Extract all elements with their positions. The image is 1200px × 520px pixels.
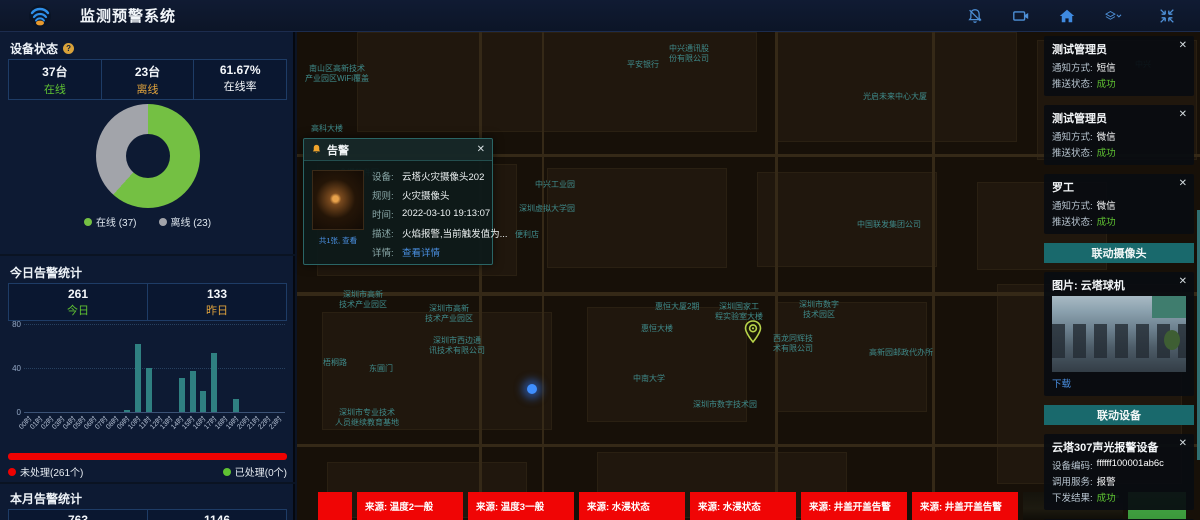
stat-cell: 133昨日 [147,284,286,320]
red-dot-icon [8,468,16,476]
legend-label: 在线 (37) [96,214,137,229]
alert-source-box[interactable]: 来源: 井盖开盖告警 [801,492,907,520]
bar-slot [24,324,35,412]
map-label: 深圳虚拟大学园 [519,204,575,214]
card-row: 通知方式:短信 [1052,60,1186,74]
month-alerts-title: 本月告警统计 [10,490,82,507]
top-header: 监测预警系统 [0,0,1200,32]
today-alerts-stats: 261今日133昨日 [8,283,287,321]
header-toolbar [966,7,1178,25]
bar-slot [46,324,57,412]
stat-label: 离线 [102,81,194,97]
stat-cell: 37台在线 [9,60,101,99]
card-row-value: 成功 [1097,490,1116,504]
map-label: 中兴通讯股 份有限公司 [669,44,709,64]
card-row-value: 微信 [1097,129,1116,143]
close-icon[interactable]: ✕ [1179,110,1187,120]
linked-devices-header[interactable]: 联动设备 [1044,405,1194,425]
map-label: 深圳市专业技术 人员继续教育基地 [335,408,399,428]
bar-slot [198,324,209,412]
map-label: 梧桐路 [323,358,347,368]
bar-slot [78,324,89,412]
alert-source-box[interactable]: 来源: 温度3一般 [468,492,574,520]
divider [0,254,295,256]
today-alerts-title: 今日告警统计 [10,264,82,281]
bar-slot [231,324,242,412]
notification-card: 测试管理员✕通知方式:微信推送状态:成功 [1044,105,1194,165]
notification-card: 云塔307声光报警设备✕设备编码:ffffff100001ab6c调用服务:报警… [1044,434,1194,510]
card-row-value: 成功 [1097,76,1116,90]
stat-label: 在线率 [194,78,286,94]
bar-slot [176,324,187,412]
card-row: 下发结果:成功 [1052,490,1186,504]
map-label: 中国联发集团公司 [857,220,921,230]
card-title: 罗工 [1052,179,1186,195]
notification-card: 罗工✕通知方式:微信推送状态:成功 [1044,174,1194,234]
popup-field-label: 规则: [372,188,398,202]
card-row-value: ffffff100001ab6c [1097,458,1164,472]
popup-field-label: 详情: [372,245,398,259]
fire-snapshot-image[interactable] [312,170,364,230]
bar-slot [133,324,144,412]
notification-off-icon[interactable] [966,7,986,25]
card-row-label: 通知方式: [1052,129,1093,143]
camera-snapshot-image[interactable] [1052,296,1186,372]
card-row: 推送状态:成功 [1052,145,1186,159]
legend-item: 在线 (37) [84,214,137,229]
bar [190,371,196,412]
bar [135,344,141,412]
card-row-label: 推送状态: [1052,76,1093,90]
camera-image-title: 图片: 云塔球机 [1052,277,1186,293]
card-row-label: 推送状态: [1052,145,1093,159]
stat-value: 37台 [9,63,101,80]
close-icon[interactable]: ✕ [1179,439,1187,449]
card-row: 推送状态:成功 [1052,76,1186,90]
alert-popup-titlebar: 告警 ✕ [304,139,492,161]
card-row-label: 通知方式: [1052,60,1093,74]
map-building [777,32,1017,142]
map-label: 深圳市高新 技术产业园区 [339,290,387,310]
popup-field-row: 详情:查看详情 [372,242,488,261]
alert-source-box[interactable]: 来源: 井盖开盖告警 [912,492,1018,520]
popup-field-value: 火灾摄像头 [402,188,450,202]
alert-source-box[interactable]: 来源: 水浸状态 [690,492,796,520]
camera-image-card: 图片: 云塔球机 ✕ 下载 [1044,272,1194,396]
notification-card: 测试管理员✕通知方式:短信推送状态:成功 [1044,36,1194,96]
stat-cell: 261今日 [9,284,147,320]
alert-source-box[interactable]: 来源: 温度2一般 [357,492,463,520]
donut-legend: 在线 (37)离线 (23) [0,214,295,229]
stat-value: 1146 [148,513,286,520]
card-row: 调用服务:报警 [1052,474,1186,488]
map-label: 高科大楼 [311,124,343,134]
stat-cell: 763 [9,510,147,520]
app-logo-icon [28,4,52,28]
x-tick: 23时 [274,415,285,445]
green-dot-icon [223,468,231,476]
right-panel: 测试管理员✕通知方式:短信推送状态:成功测试管理员✕通知方式:微信推送状态:成功… [1044,36,1194,520]
bell-icon [311,144,322,155]
page-title: 监测预警系统 [80,5,176,26]
alert-popup-body: 共1张, 查看 设备:云塔火灾摄像头202规则:火灾摄像头时间:2022-03-… [304,161,492,175]
bar-slot [100,324,111,412]
popup-field-row: 规则:火灾摄像头 [372,185,488,204]
video-camera-icon[interactable] [1012,7,1032,25]
close-icon[interactable]: ✕ [477,145,485,155]
close-icon[interactable]: ✕ [1179,179,1187,189]
popup-field-row: 描述:火焰报警,当前触发值为... [372,223,488,242]
bar [211,353,217,412]
card-row-label: 调用服务: [1052,474,1093,488]
map-label: 深圳市数字 技术园区 [799,300,839,320]
alert-source-box[interactable] [318,492,352,520]
stat-label: 今日 [9,302,147,318]
bar-slot [68,324,79,412]
stat-label: 昨日 [148,302,286,318]
download-link[interactable]: 下载 [1052,376,1186,390]
divider [0,482,295,484]
card-row: 推送状态:成功 [1052,214,1186,228]
map-label: 平安银行 [627,60,659,70]
bar-slot [122,324,133,412]
bar-slot [220,324,231,412]
fullscreen-exit-icon[interactable] [1158,7,1178,25]
alert-source-box[interactable]: 来源: 水浸状态 [579,492,685,520]
snapshot-view-link[interactable]: 共1张, 查看 [312,235,364,246]
stat-value: 763 [9,513,147,520]
stat-value: 261 [9,287,147,301]
map-label: 中兴工业园 [535,180,575,190]
map-label: 深圳国家工 程实验室大楼 [715,302,763,322]
card-row: 设备编码:ffffff100001ab6c [1052,458,1186,472]
help-icon[interactable]: ? [63,43,74,54]
map-label: 深圳市数字技术园 [693,400,757,410]
map-label: 深圳市西边通 讯技术有限公司 [429,336,485,356]
month-alerts-stats: 7631146 [8,509,287,520]
map-label: 西龙同辉技 术有限公司 [773,334,813,354]
bar-slot [57,324,68,412]
map-label: 中南大学 [633,374,665,384]
popup-field-label: 时间: [372,207,398,221]
bar-slot [165,324,176,412]
bar-slot [209,324,220,412]
linked-camera-header[interactable]: 联动摄像头 [1044,243,1194,263]
card-title: 云塔307声光报警设备 [1052,439,1186,455]
dashboard: 监测预警系统 [0,0,1200,520]
stat-cell: 1146 [147,510,286,520]
popup-field-label: 设备: [372,169,398,183]
legend-dot-icon [84,218,92,226]
legend-item: 离线 (23) [159,214,212,229]
device-status-stats: 37台在线23台离线61.67%在线率 [8,59,287,100]
stat-cell: 23台离线 [101,60,194,99]
bar-slot [274,324,285,412]
layers-icon[interactable] [1104,7,1132,25]
bar [200,391,206,412]
map-label: 惠恒大楼 [641,324,673,334]
popup-field-value: 云塔火灾摄像头202 [402,169,484,183]
bar-slot [242,324,253,412]
stat-label: 在线 [9,81,101,97]
popup-field-label: 描述: [372,226,398,240]
card-row-value: 成功 [1097,145,1116,159]
legend-label: 离线 (23) [171,214,212,229]
map-label: 东圃门 [369,364,393,374]
bar-slot [187,324,198,412]
card-row-label: 下发结果: [1052,490,1093,504]
stat-value: 61.67% [194,63,286,77]
unhandled-progress-bar [8,453,287,460]
map-label: 光启未来中心大厦 [863,92,927,102]
bar-slot [263,324,274,412]
alert-popup-title: 告警 [327,142,472,158]
card-row: 通知方式:微信 [1052,129,1186,143]
bar [233,399,239,412]
map-road [775,32,778,520]
stat-value: 133 [148,287,286,301]
map-road [479,32,482,520]
bar-slot [111,324,122,412]
card-row-value: 微信 [1097,198,1116,212]
card-title: 测试管理员 [1052,110,1186,126]
chevron-down-icon [1117,14,1121,16]
device-status-title: 设备状态 ? [10,40,74,57]
card-title: 测试管理员 [1052,41,1186,57]
map-label: 高新园邮政代办所 [869,348,933,358]
stat-cell: 61.67%在线率 [193,60,286,99]
bar-slot [89,324,100,412]
handled-legend-item: 已处理(0个) [223,464,287,479]
map-label: 南山区高新技术 产业园区WiFi覆盖 [305,64,369,84]
close-icon[interactable]: ✕ [1179,277,1187,287]
map-road [542,32,544,520]
bar [124,410,130,412]
bar [179,378,185,412]
popup-field-row: 设备:云塔火灾摄像头202 [372,166,488,185]
view-details-link[interactable]: 查看详情 [402,245,440,259]
card-row-label: 通知方式: [1052,198,1093,212]
hourly-alerts-bar-chart: 80 40 0 00时01时02时03时04时05时06时07时08时09时10… [8,320,287,446]
popup-field-value: 2022-03-10 19:13:07 [402,208,490,219]
location-dot[interactable] [527,384,537,394]
legend-dot-icon [159,218,167,226]
map-pin-icon[interactable] [743,320,763,344]
card-row-value: 成功 [1097,214,1116,228]
bar-slot [144,324,155,412]
card-row-value: 报警 [1097,474,1116,488]
map-label: 便利店 [515,230,539,240]
unhandled-legend-item: 未处理(261个) [8,464,83,479]
card-row-label: 推送状态: [1052,214,1093,228]
left-sidebar: 设备状态 ? 37台在线23台离线61.67%在线率 在线 (37)离线 (23… [0,32,295,520]
bar [146,368,152,412]
map-label: 深圳市高新 技术产业园区 [425,304,473,324]
bar-slot [252,324,263,412]
device-status-donut-chart [96,104,200,208]
bar-slot [35,324,46,412]
bar-slot [155,324,166,412]
processed-legend: 未处理(261个) 已处理(0个) [8,464,287,479]
alert-popup: 告警 ✕ 共1张, 查看 设备:云塔火灾摄像头202规则:火灾摄像头时间:202… [303,138,493,265]
card-row-label: 设备编码: [1052,458,1093,472]
stat-value: 23台 [102,63,194,80]
close-icon[interactable]: ✕ [1179,41,1187,51]
home-icon[interactable] [1058,7,1078,25]
popup-field-row: 时间:2022-03-10 19:13:07 [372,204,488,223]
card-row: 通知方式:微信 [1052,198,1186,212]
card-row-value: 短信 [1097,60,1116,74]
map-label: 惠恒大厦2期 [655,302,699,312]
map-road [932,32,935,520]
popup-field-value: 火焰报警,当前触发值为... [402,226,508,240]
